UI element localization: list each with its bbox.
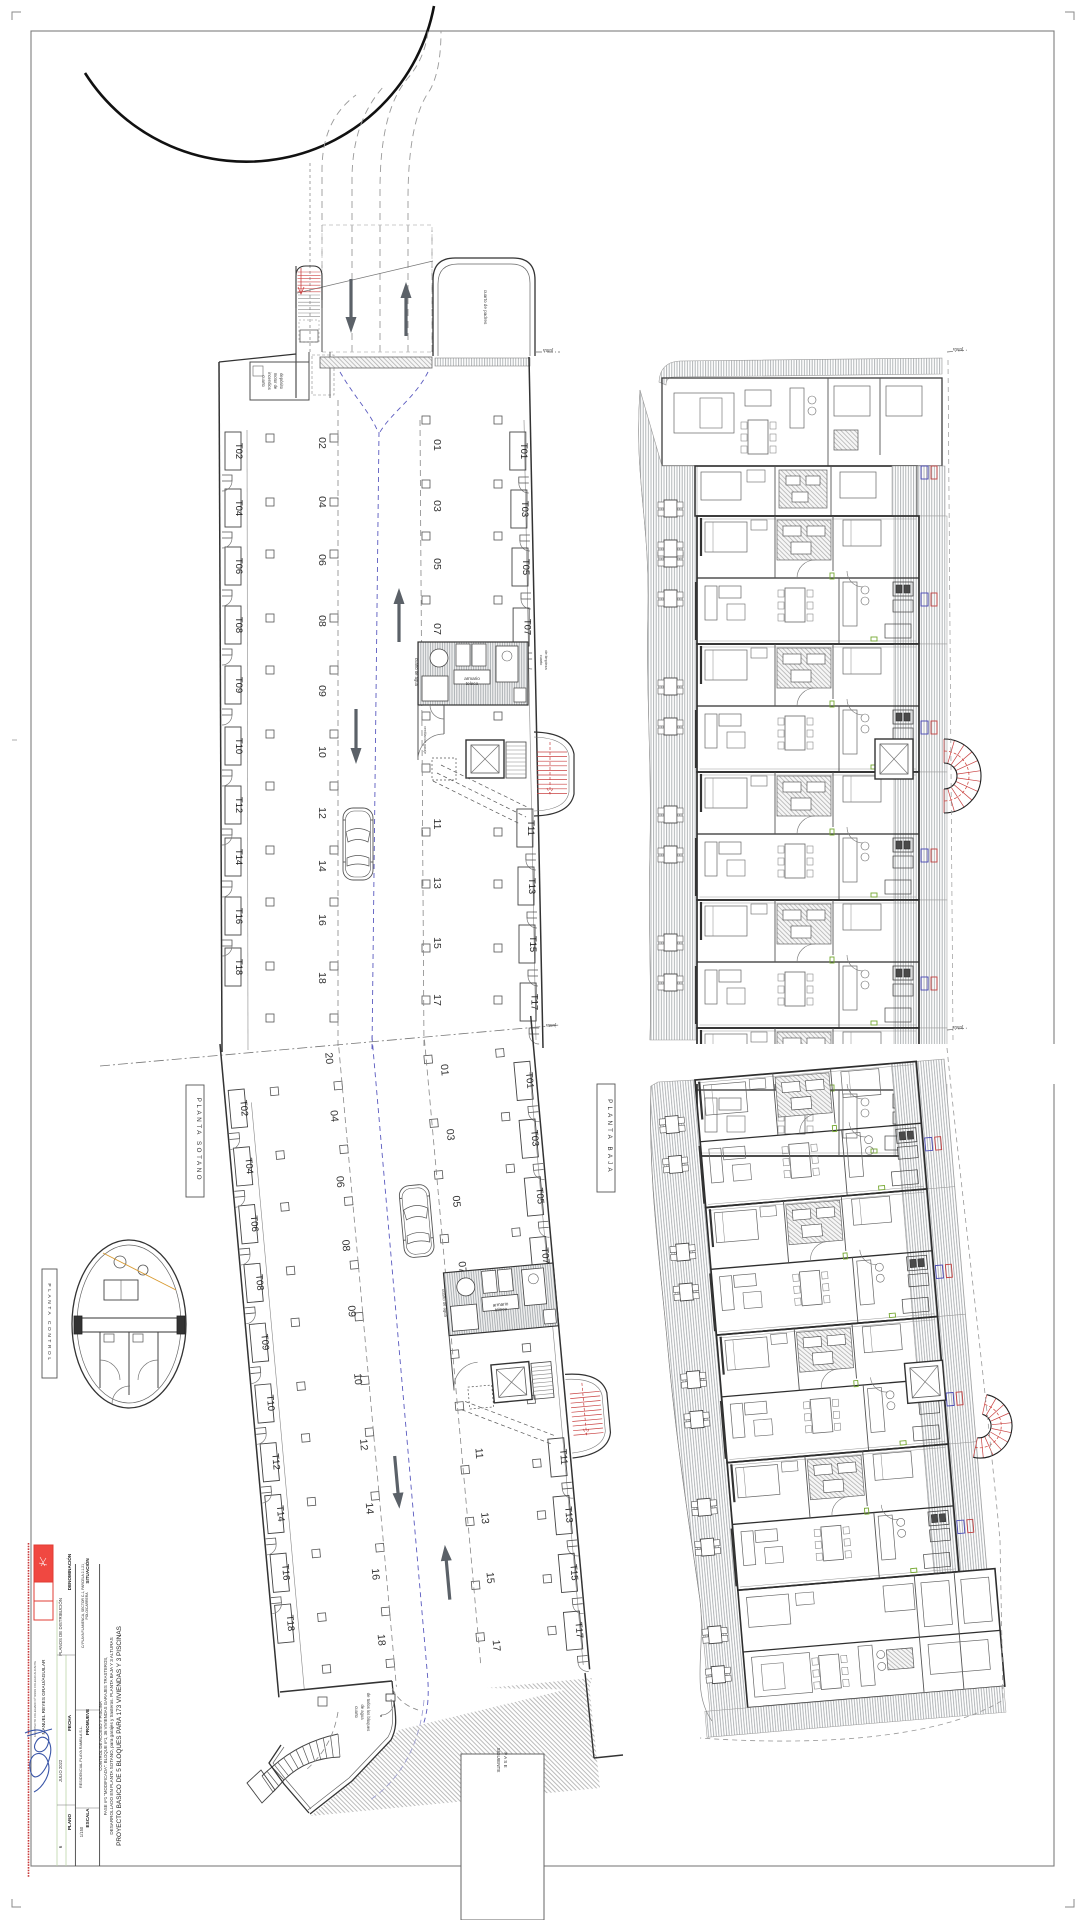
svg-text:13: 13 [478,1512,491,1525]
svg-text:T14: T14 [233,849,244,865]
svg-text:PLANOS DE DISTRIBUCIÓN: PLANOS DE DISTRIBUCIÓN [58,1598,63,1656]
svg-text:12: 12 [316,807,328,819]
svg-text:01: 01 [438,1064,451,1077]
svg-text:11: 11 [431,819,443,830]
svg-text:PROYECTO BASICO DE 5 BLOQUES: PROYECTO BASICO DE 5 BLOQUES PARA 173 VI… [116,1626,123,1846]
svg-text:T17: T17 [573,1622,585,1639]
svg-text:06: 06 [316,554,328,566]
svg-text:de agua: de agua [360,1704,365,1720]
svg-text:T15: T15 [527,936,538,952]
svg-text:12: 12 [357,1438,370,1451]
svg-text:18: 18 [375,1634,388,1647]
svg-text:PLANTA SOTANO: PLANTA SOTANO [195,1098,202,1182]
svg-text:FECHA: FECHA [67,1714,72,1731]
svg-text:T03: T03 [528,1130,540,1147]
svg-text:05: 05 [431,558,443,570]
svg-text:teleco: teleco [466,681,479,686]
svg-text:T08: T08 [253,1274,265,1291]
svg-text:T03: T03 [519,501,530,517]
svg-text:T09: T09 [233,677,244,693]
svg-text:ventilación garaje: ventilación garaje [423,726,427,754]
svg-text:T18: T18 [284,1614,296,1631]
svg-text:T07: T07 [539,1247,551,1264]
svg-text:DESARROLLADO EN PLANTA SOTANO,: DESARROLLADO EN PLANTA SOTANO, para gara… [109,1637,114,1834]
svg-text:SIGUIENTE: SIGUIENTE [496,1748,501,1773]
svg-text:cuarto de agua: cuarto de agua [414,658,419,687]
svg-text:T01: T01 [523,1072,535,1089]
svg-text:PLANTA BAJA: PLANTA BAJA [606,1099,613,1175]
svg-text:cuarto: cuarto [261,375,266,387]
svg-text:T12: T12 [233,797,244,813]
svg-text:CONTROL DE ACCESO Y PISCINA: CONTROL DE ACCESO Y PISCINA [98,1701,103,1771]
svg-text:T13: T13 [526,878,537,894]
svg-text:T05: T05 [520,559,531,575]
svg-text:06: 06 [333,1175,346,1188]
svg-text:14: 14 [316,860,328,872]
svg-text:09: 09 [345,1305,358,1318]
svg-text:02: 02 [316,437,328,449]
svg-text:10: 10 [316,746,328,758]
svg-text:T06: T06 [248,1215,260,1232]
svg-text:03: 03 [444,1128,457,1141]
svg-text:11: 11 [472,1447,485,1459]
svg-text:incendios: incendios [267,372,272,390]
svg-text:T09: T09 [258,1334,270,1351]
svg-text:T04: T04 [233,500,244,516]
svg-text:16: 16 [369,1568,382,1581]
svg-text:05: 05 [450,1195,463,1208]
svg-text:T01: T01 [518,443,529,459]
svg-text:junta: junta [543,348,554,353]
svg-text:ESCALA: ESCALA [85,1808,90,1828]
svg-text:09: 09 [316,685,328,697]
svg-text:T17: T17 [528,994,539,1010]
svg-text:10: 10 [351,1373,364,1386]
svg-text:T14: T14 [274,1505,286,1522]
svg-text:T08: T08 [233,617,244,633]
svg-text:cuarto de padres: cuarto de padres [483,290,488,325]
svg-text:ARQUITECTO COLEGIADO Nº NNNN C: ARQUITECTO COLEGIADO Nº NNNN COLEGIO ALI… [33,1661,37,1737]
svg-text:16: 16 [316,914,328,926]
svg-text:cuarto: cuarto [539,655,543,666]
svg-text:08: 08 [316,615,328,627]
svg-text:04: 04 [327,1110,340,1123]
svg-text:junta: junta [546,1023,557,1028]
svg-text:6: 6 [58,1845,63,1848]
svg-text:MANUEL REYES GRAU/AGUILAR: MANUEL REYES GRAU/AGUILAR [41,1659,47,1735]
svg-text:T04: T04 [243,1157,255,1174]
svg-text:T16: T16 [233,908,244,924]
svg-text:T11: T11 [557,1449,569,1466]
svg-text:JULIO 2022: JULIO 2022 [58,1759,63,1782]
svg-text:18: 18 [316,972,328,984]
svg-text:T10: T10 [233,738,244,754]
svg-text:FASE nº1 "MODIFICADA": BLOQUE: FASE nº1 "MODIFICADA": BLOQUE nº1, 36 VI… [103,1657,108,1816]
svg-text:08: 08 [339,1239,352,1252]
svg-text:motor de: motor de [273,373,278,390]
svg-text:T13: T13 [562,1506,574,1523]
svg-text:POLO/CARRERA: POLO/CARRERA [85,1592,89,1620]
svg-text:RESIDENCIAL PLAYA RAMBLA S.L.: RESIDENCIAL PLAYA RAMBLA S.L. [79,1726,83,1788]
svg-text:T02: T02 [233,443,244,459]
svg-text:15: 15 [431,937,443,949]
svg-text:T11: T11 [525,820,536,836]
svg-text:PROMUEVE: PROMUEVE [85,1709,90,1735]
svg-text:T05: T05 [533,1187,545,1204]
svg-text:DENOMINACIÓN: DENOMINACIÓN [65,1553,72,1590]
svg-text:T18: T18 [233,959,244,975]
svg-text:T10: T10 [264,1394,276,1411]
svg-text:T15: T15 [567,1564,579,1581]
svg-text:07: 07 [431,623,443,635]
svg-text:20: 20 [322,1052,335,1065]
svg-text:T06: T06 [233,558,244,574]
svg-text:17: 17 [490,1639,503,1652]
svg-text:de limpieza: de limpieza [544,650,548,670]
svg-text:PLANO: PLANO [67,1814,72,1831]
svg-text:PLANTA CONTROL: PLANTA CONTROL [46,1283,52,1362]
svg-text:04: 04 [316,496,328,508]
svg-text:T02: T02 [237,1099,249,1116]
svg-text:14: 14 [363,1502,376,1515]
svg-text:1/150: 1/150 [79,1826,84,1837]
svg-text:depósito: depósito [279,373,284,390]
svg-text:T07: T07 [521,619,532,635]
svg-text:cuarto: cuarto [354,1706,359,1718]
svg-text:13: 13 [431,877,443,889]
svg-text:F A S E: F A S E [503,1752,508,1767]
svg-text:T12: T12 [269,1453,281,1470]
svg-text:T16: T16 [279,1564,291,1581]
svg-text:01: 01 [431,439,443,451]
svg-text:15: 15 [484,1572,497,1585]
svg-text:03: 03 [431,500,443,512]
svg-text:17: 17 [431,994,443,1006]
svg-text:de todos los bloques: de todos los bloques [366,1693,371,1731]
